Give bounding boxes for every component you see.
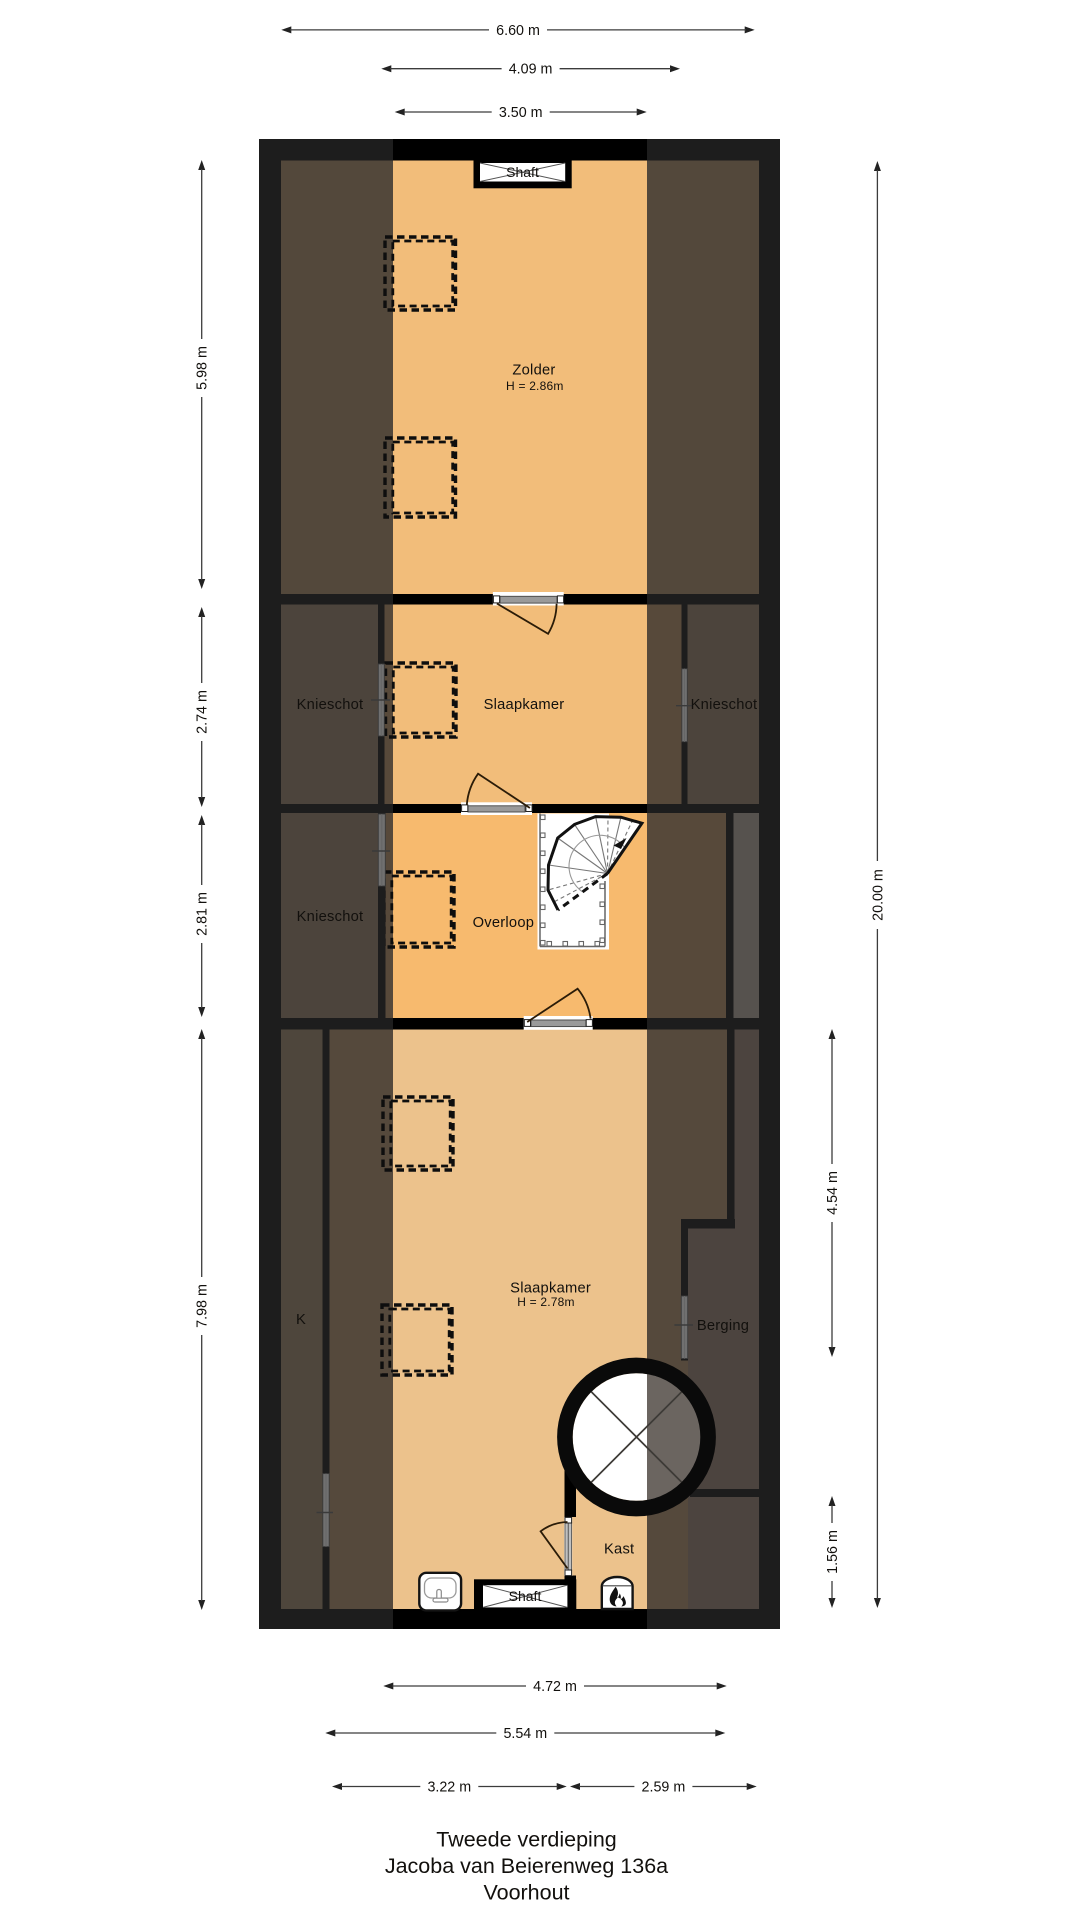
- svg-text:20.00 m: 20.00 m: [870, 869, 886, 921]
- svg-text:K: K: [296, 1312, 306, 1328]
- svg-text:Knieschot: Knieschot: [297, 909, 364, 925]
- svg-text:Shaft: Shaft: [506, 164, 539, 180]
- svg-text:Shaft: Shaft: [509, 1588, 542, 1604]
- svg-text:4.54 m: 4.54 m: [825, 1171, 841, 1215]
- svg-text:Berging: Berging: [697, 1318, 749, 1334]
- svg-text:Slaapkamer: Slaapkamer: [484, 697, 565, 713]
- svg-text:5.98 m: 5.98 m: [195, 346, 211, 390]
- svg-text:Knieschot: Knieschot: [691, 697, 758, 713]
- svg-text:6.60 m: 6.60 m: [496, 23, 540, 39]
- svg-text:2.74 m: 2.74 m: [195, 690, 211, 734]
- svg-text:3.50 m: 3.50 m: [499, 105, 543, 121]
- svg-text:Jacoba van Beierenweg 136a: Jacoba van Beierenweg 136a: [385, 1854, 668, 1878]
- svg-text:2.81 m: 2.81 m: [195, 892, 211, 936]
- svg-text:7.98 m: 7.98 m: [195, 1284, 211, 1328]
- svg-text:4.72 m: 4.72 m: [533, 1679, 577, 1695]
- svg-text:3.22 m: 3.22 m: [427, 1780, 471, 1796]
- svg-text:Zolder: Zolder: [512, 363, 555, 379]
- svg-text:Kast: Kast: [604, 1541, 634, 1557]
- svg-text:5.54 m: 5.54 m: [503, 1726, 547, 1742]
- svg-text:H = 2.78m: H = 2.78m: [517, 1295, 575, 1309]
- svg-text:H = 2.86m: H = 2.86m: [506, 379, 564, 393]
- svg-text:1.56 m: 1.56 m: [825, 1530, 841, 1574]
- svg-text:Voorhout: Voorhout: [483, 1881, 569, 1905]
- svg-text:Knieschot: Knieschot: [297, 697, 364, 713]
- svg-text:4.09 m: 4.09 m: [509, 62, 553, 78]
- svg-text:Tweede verdieping: Tweede verdieping: [436, 1828, 616, 1852]
- svg-text:Overloop: Overloop: [473, 915, 535, 931]
- svg-text:2.59 m: 2.59 m: [642, 1780, 686, 1796]
